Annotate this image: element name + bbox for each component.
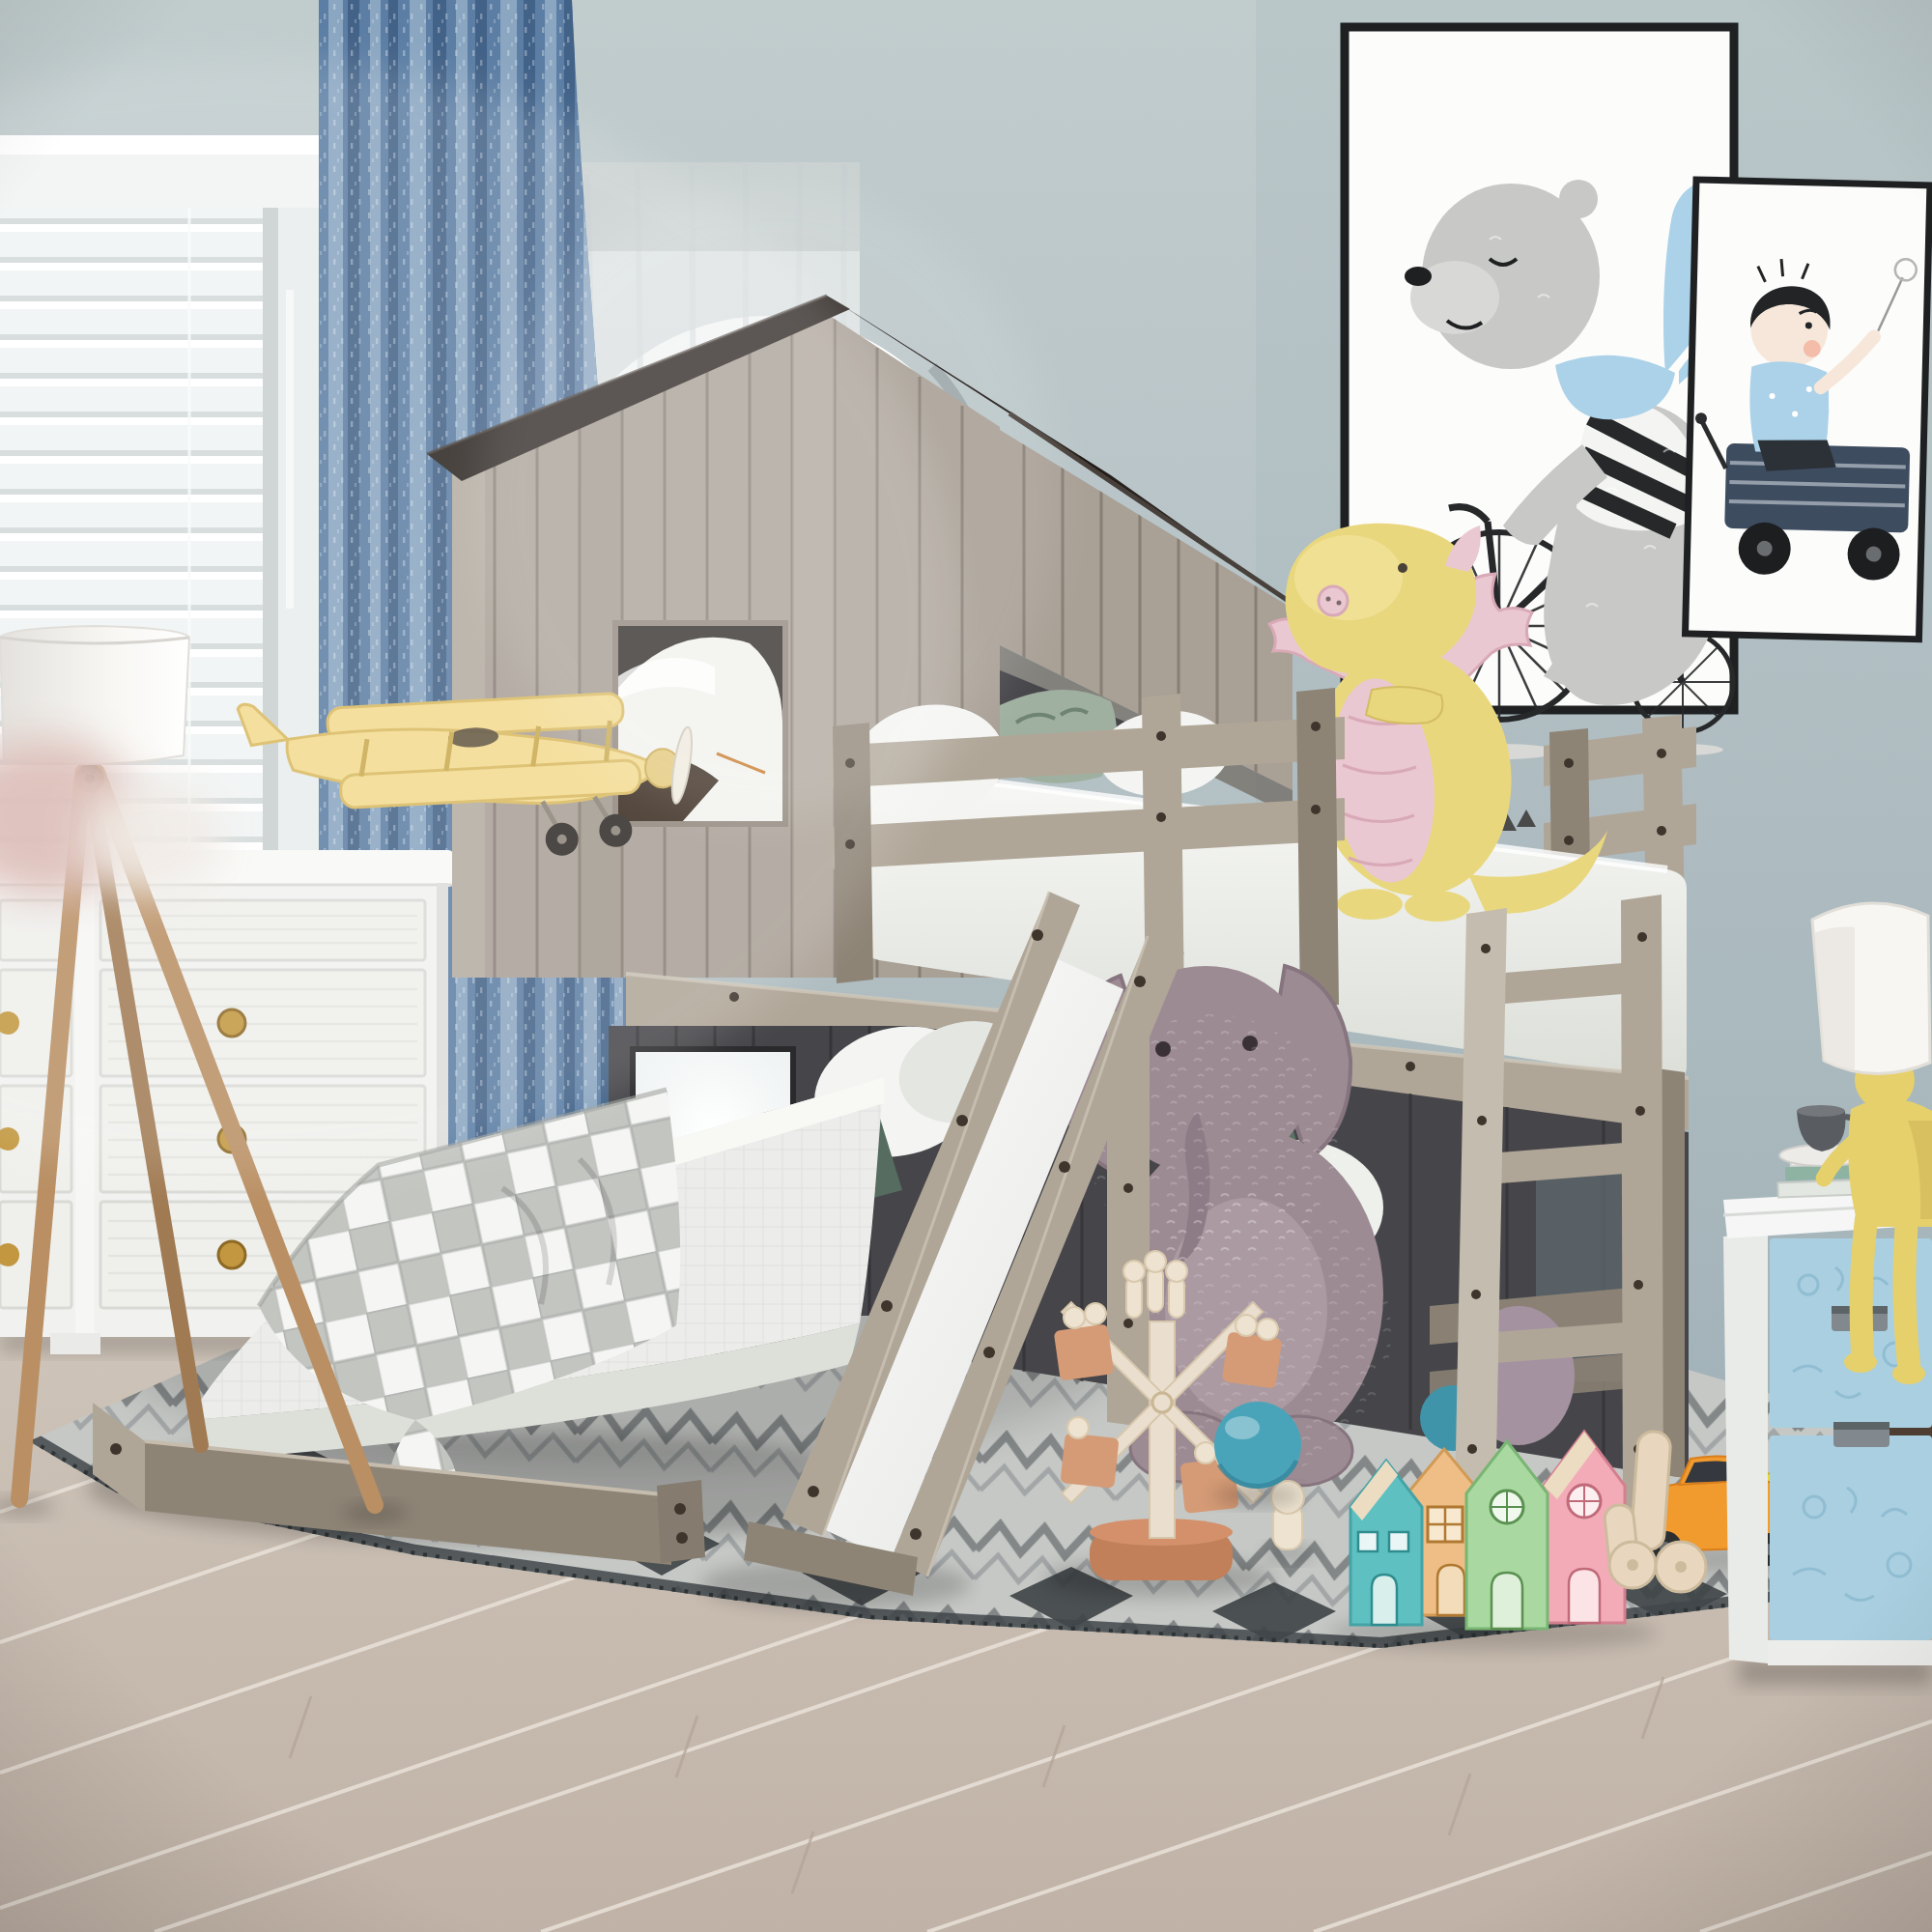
- room: [0, 0, 1932, 1932]
- scene-canvas: [0, 0, 1932, 1932]
- light-overlay: [0, 0, 1932, 1932]
